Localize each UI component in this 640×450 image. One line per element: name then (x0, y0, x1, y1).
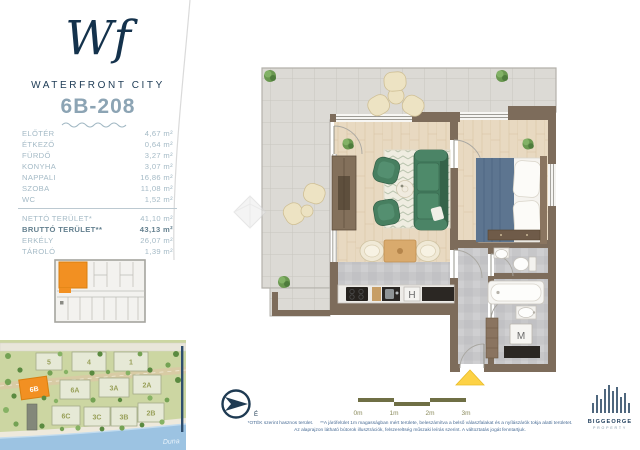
stove (346, 287, 368, 301)
toilet (514, 257, 537, 271)
sofa (414, 150, 448, 230)
svg-text:3C: 3C (93, 415, 102, 422)
unit-id: 6B-208 (0, 95, 196, 119)
svg-text:1m: 1m (389, 410, 398, 417)
table-row: ELŐTÉR4,67 m² (0, 128, 196, 139)
svg-text:6C: 6C (62, 414, 71, 421)
totals-section: NETTÓ TERÜLET*41,10 m² BRUTTÓ TERÜLET**4… (18, 208, 177, 257)
armchair (372, 198, 401, 227)
compass: É (219, 387, 265, 423)
svg-text:4: 4 (87, 360, 91, 367)
floor-plan: H (248, 56, 568, 391)
publisher-logo-icon (588, 383, 632, 413)
publisher-logo: BIGGEORGE PROPERTY (582, 383, 638, 430)
bath-sink (516, 306, 536, 319)
publisher-division: PROPERTY (582, 426, 638, 430)
fridge-label: H (408, 290, 415, 301)
table-row: WC1,52 m² (0, 194, 196, 205)
table-row: ERKÉLY26,07 m² (18, 235, 177, 246)
table-row: SZOBA11,08 m² (0, 183, 196, 194)
svg-text:3m: 3m (461, 410, 470, 417)
map-river-label: Duna (163, 438, 180, 446)
svg-text:1: 1 (129, 360, 133, 367)
cutting-board (372, 287, 381, 301)
footnote-3: Az alaprajzon látható bútorok illusztrác… (238, 427, 582, 434)
svg-text:0m: 0m (353, 410, 362, 417)
svg-text:5: 5 (47, 360, 51, 367)
table-row: ÉTKEZŐ0,64 m² (0, 139, 196, 150)
table-row-gross: BRUTTÓ TERÜLET**43,13 m² (18, 224, 177, 235)
plant (278, 276, 290, 288)
svg-text:3A: 3A (110, 386, 119, 393)
dining-set (360, 240, 440, 262)
brand-name: WATERFRONT CITY (0, 80, 196, 91)
brand-logo: Wf (0, 10, 196, 68)
area-table: ELŐTÉR4,67 m² ÉTKEZŐ0,64 m² FÜRDŐ3,27 m²… (0, 128, 196, 257)
footnote-2: **A járófelület 1m magasságban mért terü… (320, 421, 572, 426)
washer-label: M (517, 331, 525, 342)
footnote-1: *OTÉK szerint hasznos terület. (248, 421, 314, 426)
svg-text:3B: 3B (120, 415, 129, 422)
site-map: Duna 5 4 1 6B 6A 3A 2A 6C 3C 3B (0, 340, 186, 450)
plant (264, 70, 276, 82)
logo-monogram-w: W (65, 11, 113, 66)
logo-monogram-f: f (113, 11, 130, 66)
map-street-top (0, 343, 186, 351)
svg-text:6A: 6A (71, 388, 80, 395)
bath-bench (486, 318, 498, 358)
publisher-name: BIGGEORGE (582, 419, 638, 425)
kitchen-counter: H (338, 285, 454, 303)
plant (496, 70, 508, 82)
table-row: FÜRDŐ3,27 m² (0, 150, 196, 161)
entrance-marker (456, 370, 484, 385)
table-row: KONYHA3,07 m² (0, 161, 196, 172)
floorplan-sheet: Wf WATERFRONT CITY 6B-208 ELŐTÉR4,67 m² … (0, 0, 640, 450)
coffee-table (397, 181, 414, 198)
table-row: NAPPALI16,86 m² (0, 172, 196, 183)
table-row: TÁROLÓ1,39 m² (18, 246, 177, 257)
scale-bar: 0m 1m 2m 3m (350, 392, 480, 420)
map-border-line (181, 346, 183, 432)
key-plan (52, 257, 152, 331)
svg-text:2m: 2m (425, 410, 434, 417)
svg-text:2A: 2A (143, 383, 152, 390)
north-label: É (254, 411, 258, 418)
svg-text:6B: 6B (29, 386, 39, 394)
wc-sink (494, 248, 509, 259)
footnotes: *OTÉK szerint hasznos terület.**A járófe… (238, 420, 582, 435)
bath-cabinet (504, 346, 540, 358)
bedroom-dresser (488, 230, 540, 240)
north-arrow-icon (225, 397, 248, 411)
kitchen-cabinet (422, 287, 454, 301)
bathtub (488, 281, 544, 304)
table-row: NETTÓ TERÜLET*41,10 m² (18, 213, 177, 224)
watermark-logo (232, 194, 268, 230)
map-building-dark (27, 404, 37, 430)
svg-text:2B: 2B (147, 411, 156, 418)
key-plan-highlight-unit (59, 262, 87, 288)
washing-machine: M (510, 324, 532, 344)
